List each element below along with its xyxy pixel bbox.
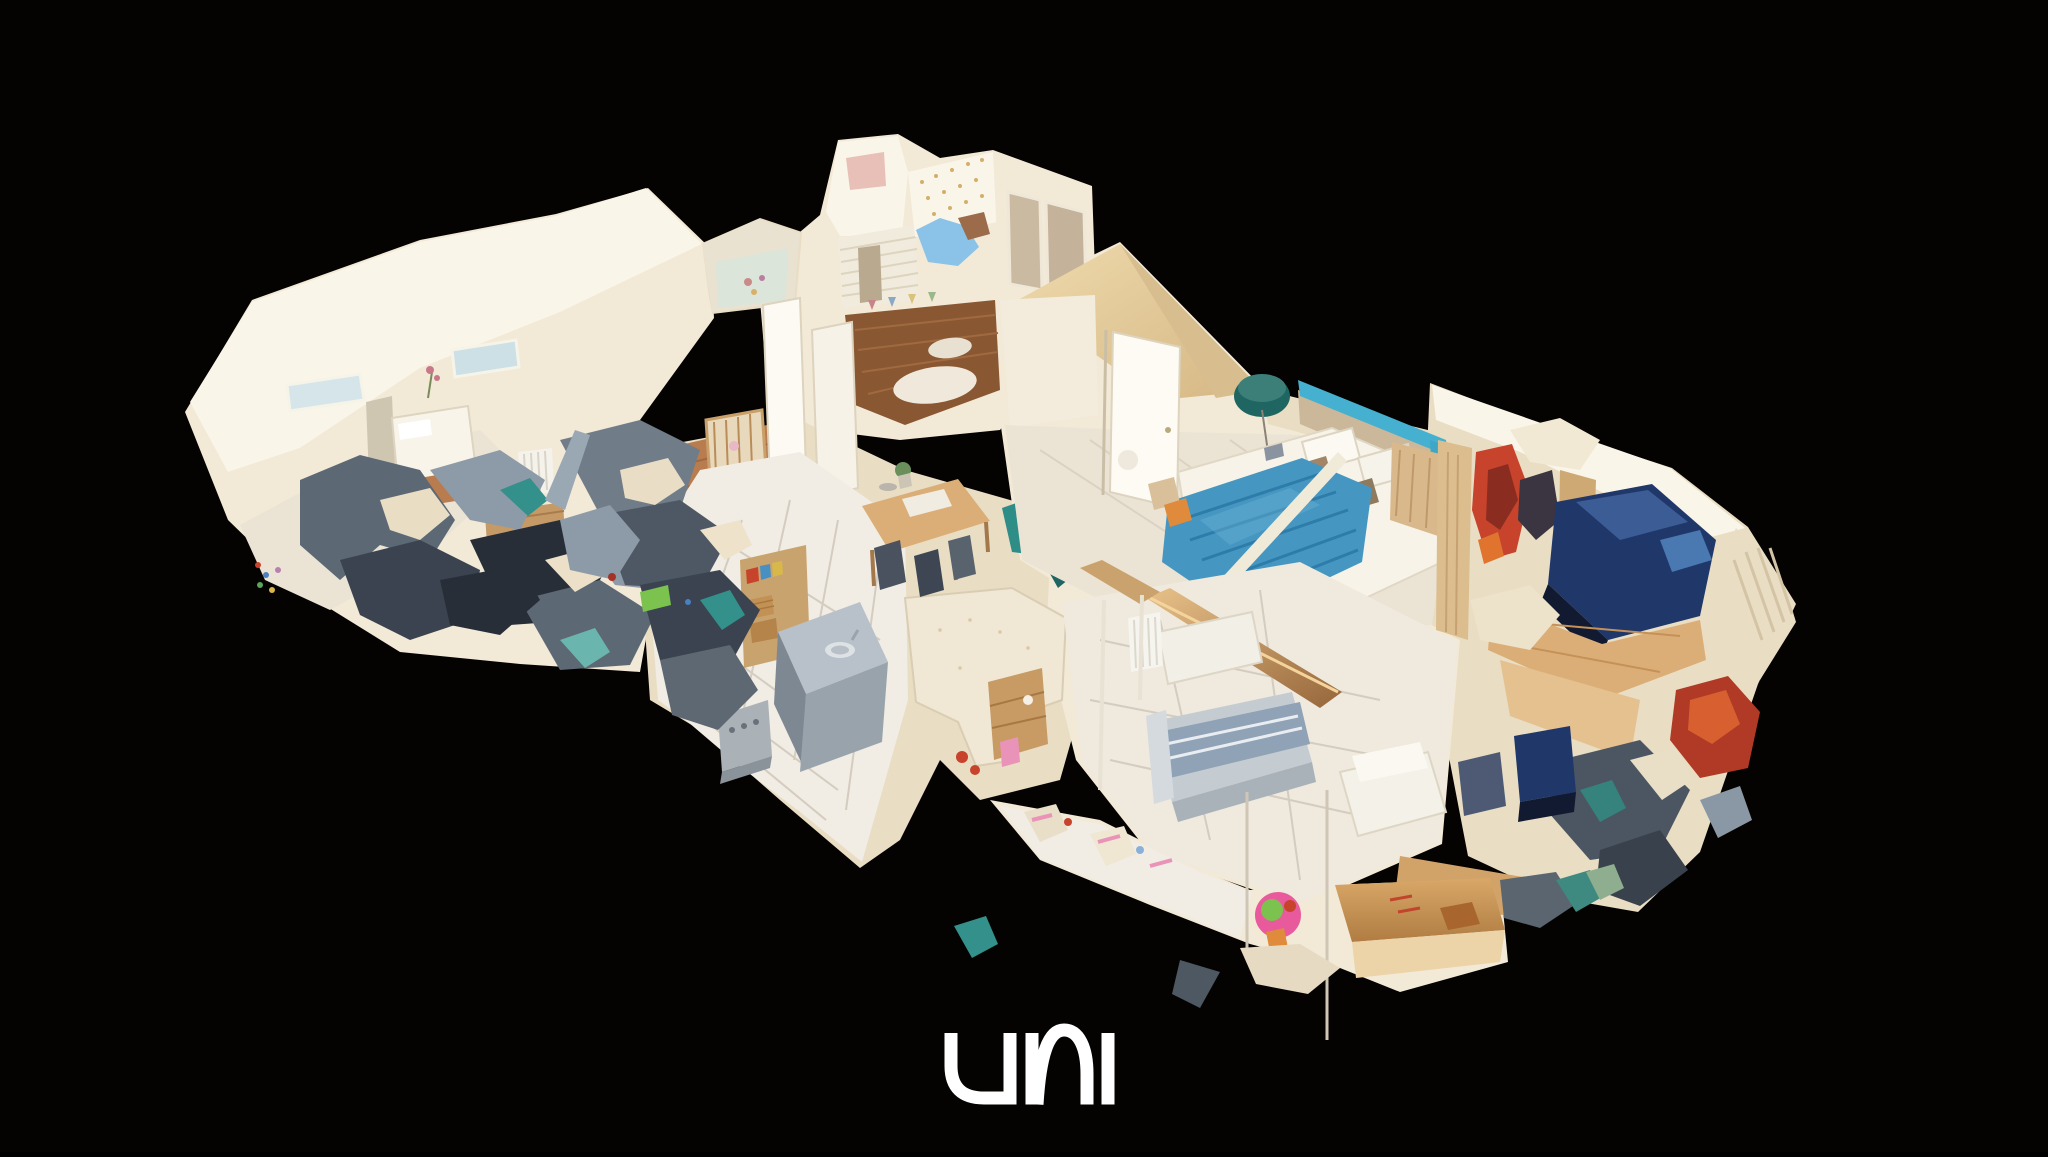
viewer-stage: uni bbox=[0, 0, 2048, 1152]
green-gable bbox=[702, 219, 800, 312]
dollhouse-model bbox=[185, 134, 1796, 1040]
dollhouse-3d-viewport[interactable] bbox=[0, 0, 2048, 1152]
right-wardrobe-1 bbox=[1436, 440, 1472, 640]
bedroom-wall-left bbox=[1000, 295, 1098, 428]
pink-wall-patch bbox=[846, 152, 886, 190]
slat-room-door bbox=[858, 245, 882, 303]
wardrobe-door-left bbox=[1008, 192, 1042, 290]
wooden-toy-chest bbox=[1335, 878, 1505, 978]
